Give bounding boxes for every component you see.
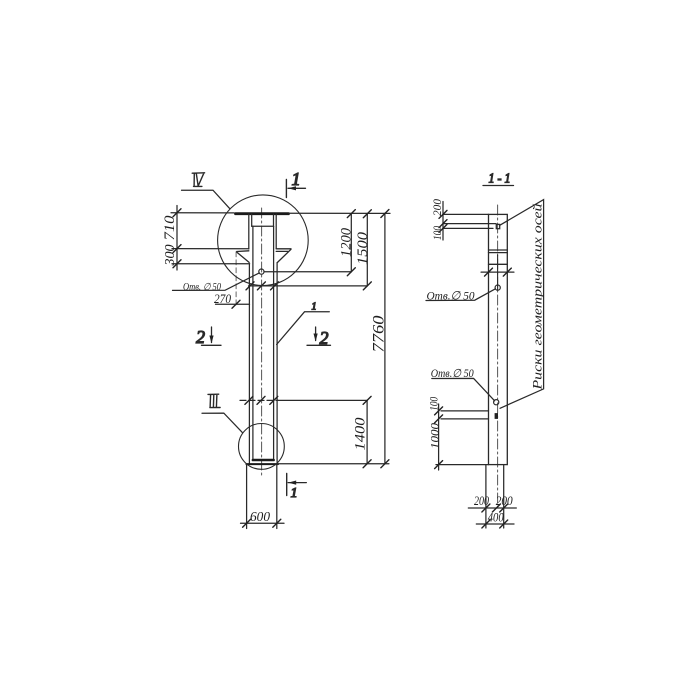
- svg-text:710: 710: [162, 215, 178, 241]
- svg-text:1: 1: [292, 169, 301, 189]
- svg-text:2: 2: [196, 327, 205, 347]
- svg-text:Риски геометрических осей: Риски геометрических осей: [531, 203, 545, 391]
- svg-text:600: 600: [250, 510, 270, 525]
- svg-text:200: 200: [474, 493, 489, 508]
- svg-text:200: 200: [496, 493, 513, 508]
- svg-text:1: 1: [312, 302, 317, 313]
- svg-text:300: 300: [163, 245, 178, 267]
- svg-text:1500: 1500: [355, 231, 371, 265]
- svg-text:1200: 1200: [339, 228, 355, 257]
- svg-text:400: 400: [488, 510, 504, 525]
- svg-text:100: 100: [429, 397, 441, 411]
- svg-text:1: 1: [291, 486, 298, 501]
- svg-text:1 - 1: 1 - 1: [489, 172, 511, 187]
- svg-text:7760: 7760: [371, 316, 388, 353]
- svg-text:1000: 1000: [428, 423, 442, 449]
- svg-text:200: 200: [430, 199, 444, 216]
- svg-text:100: 100: [432, 226, 444, 240]
- svg-text:1400: 1400: [353, 417, 369, 451]
